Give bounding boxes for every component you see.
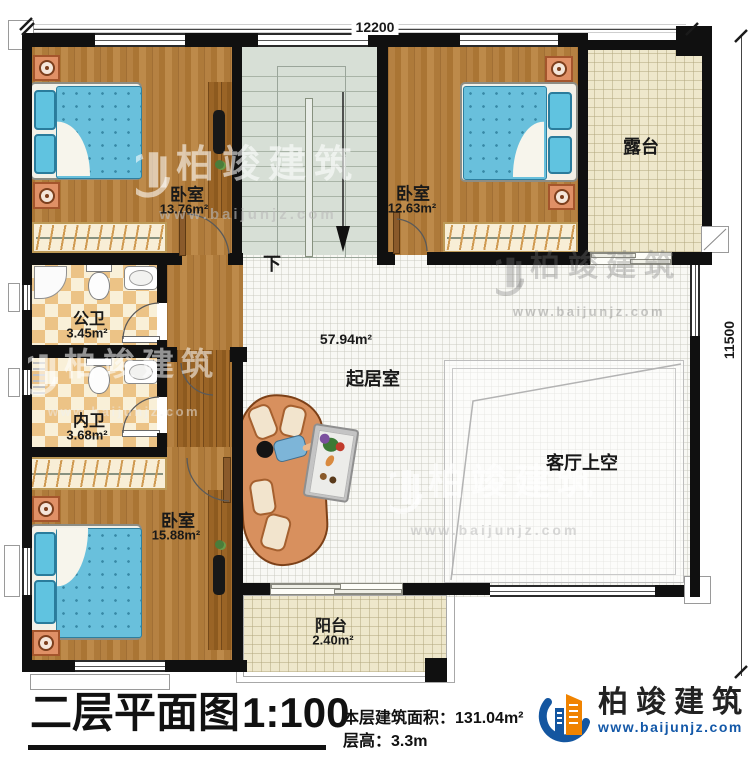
stair-down-label: 下 (263, 250, 281, 276)
person-head (256, 440, 274, 458)
wardrobe (28, 457, 167, 490)
sofa-cushion (248, 477, 277, 516)
title-underline (28, 745, 326, 750)
lamp-icon (38, 501, 54, 517)
stair-flight-edge-top (277, 66, 346, 67)
room-label: 露台 (623, 133, 659, 159)
pillow (34, 580, 56, 624)
door-leaf (179, 212, 186, 256)
hangers-icon (446, 225, 575, 250)
floor-height-value: 3.3m (391, 733, 427, 750)
window-sill (4, 545, 20, 597)
wall (672, 252, 712, 265)
nightstand (548, 184, 575, 210)
wall (427, 252, 585, 265)
wall (22, 660, 75, 672)
pillow (34, 134, 56, 174)
brand-website: www.baijunjz.com (598, 719, 750, 735)
column (425, 658, 447, 682)
floor-height-label: 层高： (343, 733, 391, 750)
wall (22, 345, 167, 358)
floor-height-line: 层高：3.3m (343, 727, 427, 751)
lamp-icon (554, 189, 570, 205)
wall (165, 660, 247, 672)
toilet-icon (88, 366, 110, 394)
right-dimension-line (741, 36, 742, 676)
wall (232, 33, 242, 258)
floorplan-canvas: 柏竣建筑 www.baijunjz.com 柏竣建筑 www.baijunjz.… (0, 0, 750, 760)
nightstand (33, 55, 60, 81)
room-area: 13.76m² (160, 202, 208, 217)
toilet-icon (88, 272, 110, 300)
wall (232, 362, 243, 660)
plan-title: 二层平面图1:100 (30, 692, 349, 734)
plan-scale: 1:100 (242, 689, 349, 736)
pillow (548, 92, 572, 130)
window-sill (8, 283, 20, 312)
wall (702, 40, 712, 226)
bath-door-leaf (122, 336, 160, 343)
wall (230, 347, 247, 362)
shower-head-icon (33, 362, 45, 394)
sofa-cushion (259, 512, 293, 554)
tv-icon (213, 555, 225, 595)
nightstand (33, 182, 60, 209)
room-area: 3.68m² (66, 428, 107, 443)
window-sill (8, 368, 20, 397)
room-area: 57.94m² (320, 331, 372, 347)
nightstand (545, 56, 573, 82)
room-area: 12.63m² (388, 201, 436, 216)
room-label: 客厅上空 (546, 449, 618, 475)
sliding-door-panel (630, 259, 671, 264)
terrace-niche (701, 226, 729, 253)
wall (22, 253, 182, 265)
room-area: 15.88m² (152, 528, 200, 543)
lamp-icon (38, 635, 54, 651)
wall (185, 33, 258, 47)
wall (690, 336, 700, 597)
door-leaf (393, 212, 400, 254)
window (22, 548, 32, 595)
bath-door-leaf (122, 430, 160, 437)
window (690, 265, 700, 336)
window (460, 33, 558, 47)
floor-area-label: 本层建筑面积： (343, 710, 455, 727)
wall (403, 583, 490, 595)
floor-area-line: 本层建筑面积：131.04m² (343, 704, 524, 728)
nightstand (32, 496, 60, 522)
toilet-tank (86, 264, 112, 272)
nightstand (32, 630, 60, 656)
floor-area-value: 131.04m² (455, 710, 524, 727)
room-area: 2.40m² (312, 633, 353, 648)
toilet-tank (86, 358, 112, 366)
dimension-right: 11500 (721, 317, 737, 363)
wall (22, 447, 167, 457)
wardrobe (443, 222, 578, 253)
wall (377, 33, 388, 265)
wall (22, 33, 95, 47)
wall (157, 265, 167, 303)
wardrobe (32, 222, 167, 253)
terrace-parapet (585, 40, 676, 50)
hallway-door-panel (177, 350, 230, 458)
plan-title-text: 二层平面图 (30, 689, 240, 736)
sofa-cushion (278, 403, 309, 440)
brand-logo: 柏竣建筑 www.baijunjz.com (536, 686, 750, 748)
sliding-door-panel (271, 584, 341, 589)
wall (22, 310, 32, 370)
wall (157, 347, 177, 362)
wall (22, 395, 32, 548)
stair-handrail (305, 98, 313, 257)
window (22, 285, 32, 310)
room-label: 起居室 (346, 365, 400, 391)
hangers-icon (31, 460, 164, 487)
brand-logo-icon (536, 686, 590, 748)
sliding-door-panel (334, 589, 402, 594)
sliding-door-panel (591, 253, 636, 258)
pillow (34, 90, 56, 130)
plant-icon (215, 160, 224, 169)
window (490, 585, 655, 597)
window (75, 660, 165, 672)
pillow (34, 532, 56, 576)
wall (22, 33, 32, 285)
lamp-icon (39, 60, 55, 76)
lamp-icon (39, 188, 55, 204)
brand-company: 柏竣建筑 (598, 686, 750, 719)
dimension-top: 12200 (352, 19, 399, 35)
stair-flight-edge-left (277, 66, 278, 257)
wall (243, 583, 270, 595)
room-area: 3.45m² (66, 326, 107, 341)
door-leaf (223, 457, 231, 503)
sofa-cushion (246, 402, 281, 442)
wall (578, 33, 588, 252)
tv-icon (213, 110, 225, 154)
sink-icon (124, 360, 158, 384)
lamp-icon (551, 61, 567, 77)
plant-icon (215, 540, 224, 549)
stair-flight-edge-right (345, 66, 346, 257)
wall (228, 253, 243, 265)
hangers-icon (35, 225, 164, 250)
window (258, 33, 368, 47)
pillow (548, 136, 572, 174)
sink-icon (124, 266, 158, 290)
window (22, 370, 32, 395)
window (95, 33, 185, 47)
window-sill (30, 674, 170, 690)
